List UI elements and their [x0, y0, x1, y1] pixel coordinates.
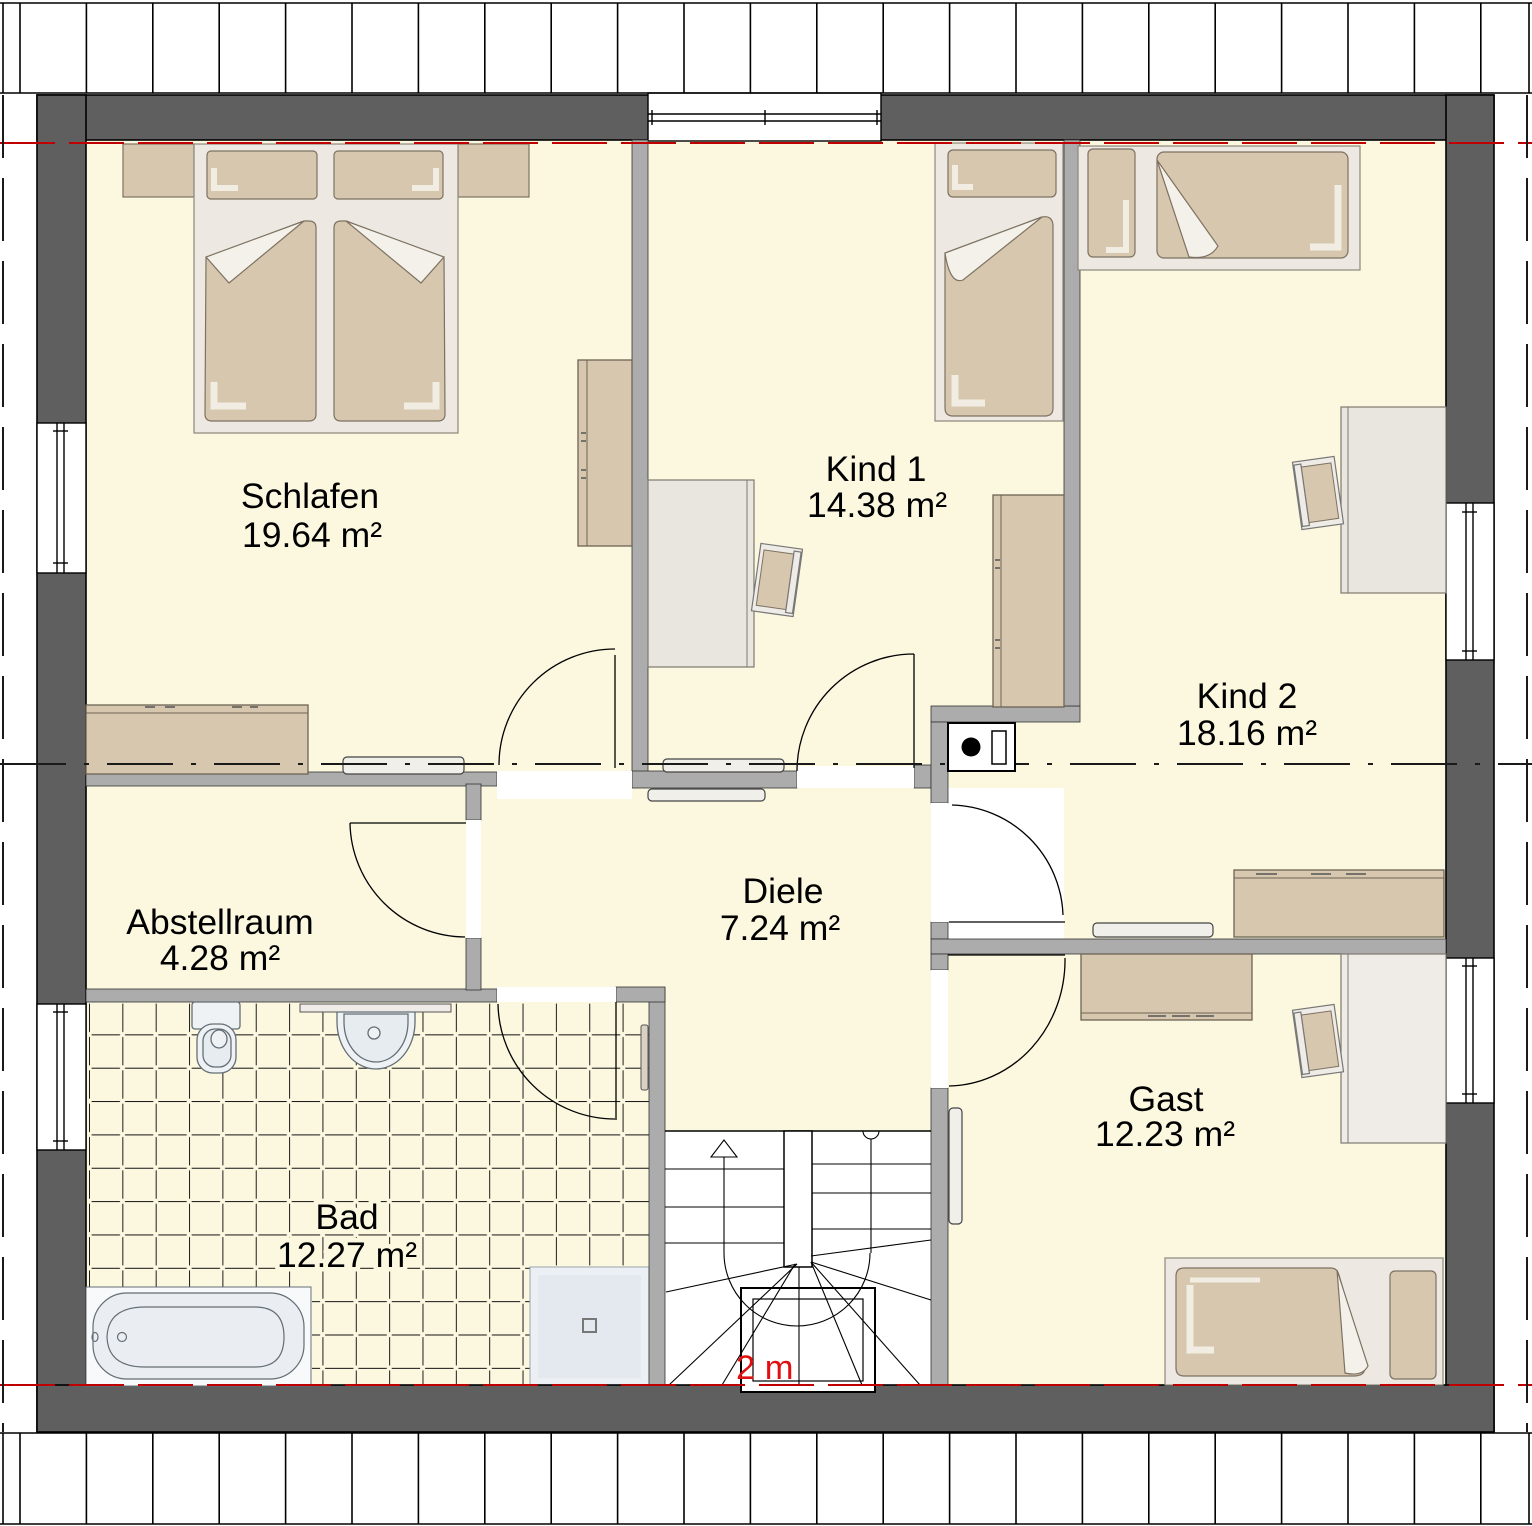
svg-text:4.28 m²: 4.28 m² — [160, 938, 281, 978]
svg-text:Schlafen: Schlafen — [241, 476, 379, 516]
svg-text:7.24 m²: 7.24 m² — [720, 908, 841, 948]
svg-text:19.64 m²: 19.64 m² — [242, 515, 382, 555]
svg-text:Diele: Diele — [743, 871, 824, 911]
svg-text:14.38 m²: 14.38 m² — [807, 485, 947, 525]
svg-text:12.27 m²: 12.27 m² — [277, 1235, 417, 1275]
svg-text:Kind 2: Kind 2 — [1197, 676, 1298, 716]
svg-text:18.16 m²: 18.16 m² — [1177, 713, 1317, 753]
svg-text:Gast: Gast — [1129, 1079, 1204, 1119]
svg-text:Abstellraum: Abstellraum — [126, 902, 313, 942]
svg-text:2 m: 2 m — [736, 1349, 794, 1387]
svg-text:12.23 m²: 12.23 m² — [1095, 1114, 1235, 1154]
svg-text:Kind 1: Kind 1 — [826, 449, 927, 489]
svg-text:Bad: Bad — [315, 1197, 378, 1237]
